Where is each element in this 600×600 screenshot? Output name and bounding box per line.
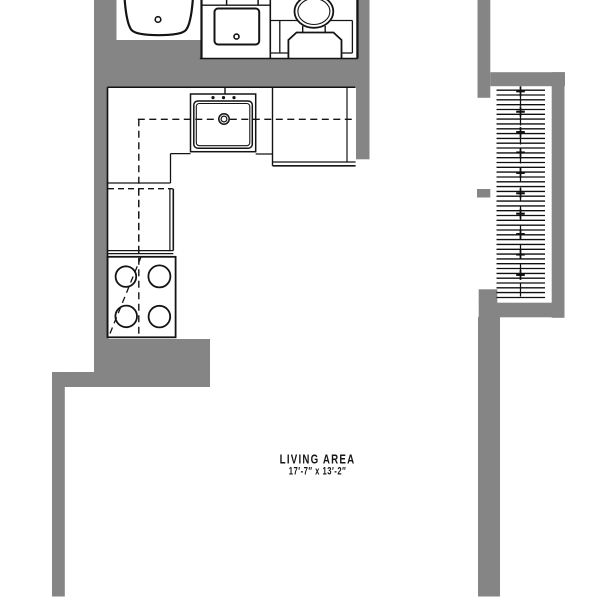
svg-text:17′-7″ x 13′-2″: 17′-7″ x 13′-2″: [289, 465, 346, 476]
